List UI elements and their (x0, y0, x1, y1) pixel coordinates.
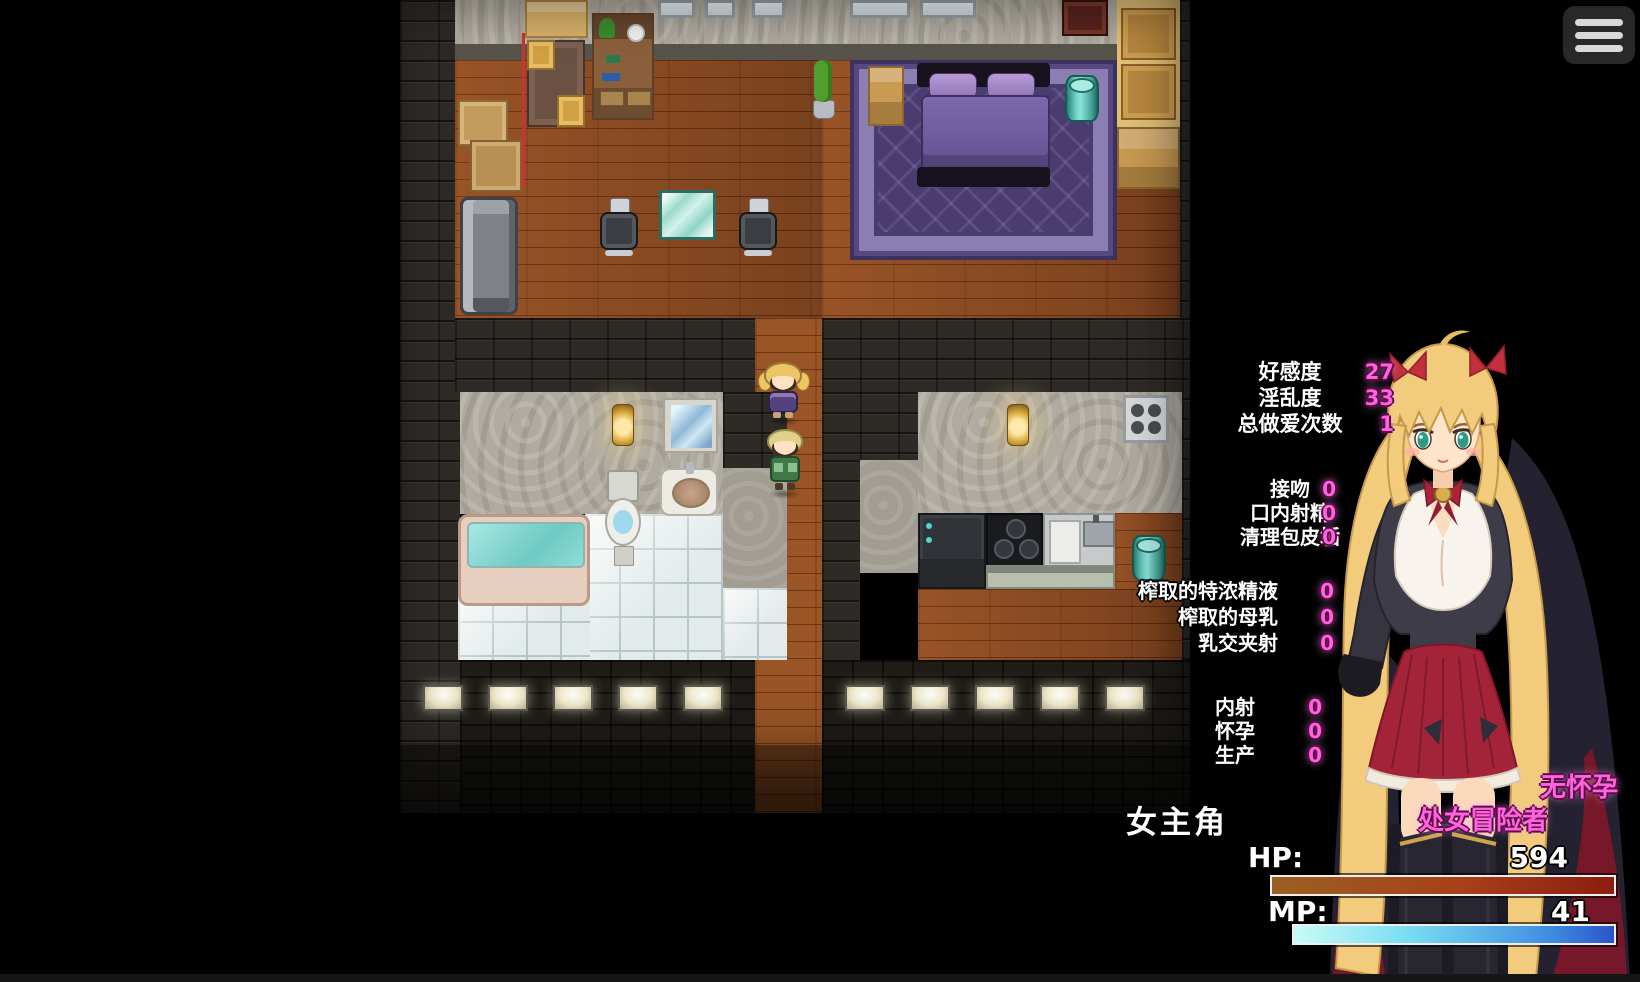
sink-faucet (686, 462, 694, 474)
basket (600, 91, 624, 106)
character-name: 女主角 (1126, 797, 1228, 842)
bed-blanket (921, 95, 1050, 175)
stat-value: 27 (1340, 359, 1394, 385)
bathtub (458, 514, 590, 606)
chair-base (744, 250, 772, 256)
stat-label: 榨取的母乳 (1040, 604, 1278, 630)
bottom-edge (0, 974, 1640, 982)
window (850, 0, 910, 18)
stat-group-extraction-values: 0 0 0 (1280, 578, 1334, 656)
cabinet-door (1121, 8, 1176, 60)
cactus (814, 60, 832, 102)
cardboard-boxes (458, 100, 522, 192)
mp-bar (1292, 924, 1616, 945)
sprite-shadow (766, 416, 800, 426)
lit-window (553, 685, 593, 711)
window (658, 0, 695, 18)
stat-value: 0 (1268, 719, 1322, 743)
bathroom-tile-floor (723, 588, 787, 660)
glass-table (659, 190, 716, 240)
hamburger-menu-icon (1575, 45, 1623, 52)
vent-fan (1123, 395, 1169, 443)
stat-value: 0 (1268, 695, 1322, 719)
lit-window (845, 685, 885, 711)
stat-group-extraction-labels: 榨取的特浓精液 榨取的母乳 乳交夹射 (1040, 578, 1278, 656)
mirror-glass (671, 405, 712, 448)
faucet (1093, 515, 1099, 523)
sprite-feet (773, 412, 781, 418)
gold-cabinet (527, 40, 555, 70)
hp-bar (1270, 875, 1616, 896)
chair-seat (739, 212, 777, 250)
right-brick-edge (1180, 0, 1190, 318)
stat-group-breeding-values: 0 0 0 (1268, 695, 1322, 767)
shelf-item (602, 73, 620, 81)
hamburger-menu-icon (1575, 32, 1623, 39)
stat-value: 0 (1280, 604, 1334, 630)
sink-basin (1083, 521, 1115, 547)
bathroom-mirror (663, 398, 718, 453)
bedroom-right-wall (1117, 0, 1180, 127)
lit-window (683, 685, 723, 711)
chair-seat (600, 212, 638, 250)
sprite-pocket (774, 463, 783, 472)
wall-lantern (1007, 404, 1029, 446)
cabinet-mark (926, 537, 932, 543)
shelf-plant (599, 18, 615, 38)
toilet-base (614, 546, 634, 566)
fan-blade (1131, 404, 1144, 417)
wall-clock (627, 24, 645, 42)
sprite-face (770, 376, 796, 391)
stat-group-relationship-values: 27 33 1 (1340, 359, 1394, 437)
lit-window (910, 685, 950, 711)
stat-value: 0 (1280, 578, 1334, 604)
basket (627, 91, 651, 106)
sprite-body (768, 391, 798, 413)
hp-value: 594 (1452, 841, 1568, 874)
status-tag-title: 处女冒险者 (1418, 800, 1548, 837)
kitchen-sink-unit (1043, 513, 1115, 567)
bathroom-sink (660, 468, 718, 516)
stat-label: 乳交夹射 (1040, 630, 1278, 656)
sprite-shadow (767, 489, 801, 499)
bed-footboard (917, 167, 1050, 187)
burner (1019, 539, 1039, 559)
fan-blade (1148, 421, 1161, 434)
bottom-shade (400, 745, 1190, 813)
lit-window (618, 685, 658, 711)
stat-value: 0 (1268, 743, 1322, 767)
shelf-book (606, 55, 620, 63)
stat-group-acts-values: 0 0 0 (1282, 477, 1336, 549)
trash-barrel (1065, 75, 1099, 122)
stove (986, 513, 1043, 567)
fan-blade (1131, 421, 1144, 434)
hp-label: HP: (1248, 841, 1303, 874)
lit-window (975, 685, 1015, 711)
kitchen-barrel (1132, 535, 1166, 581)
stat-value: 33 (1340, 385, 1394, 411)
stat-value: 0 (1282, 501, 1336, 525)
kitchen-side-wall (860, 460, 918, 573)
game-screen: 好感度 淫乱度 总做爱次数 27 33 1 接吻 口内射精 清理包皮垢 0 0 … (0, 0, 1640, 982)
npc-sprite[interactable] (763, 427, 807, 499)
game-map-viewport[interactable] (375, 0, 1190, 813)
sprite-pocket (788, 463, 797, 472)
sprite-feet (785, 412, 793, 418)
lit-window (488, 685, 528, 711)
stat-value: 0 (1280, 630, 1334, 656)
cactus-plant (810, 60, 836, 120)
stat-value: 0 (1282, 477, 1336, 501)
sofa (460, 197, 518, 315)
mid-wall-left (455, 318, 755, 392)
player-sprite[interactable] (760, 360, 806, 426)
cuckoo-clock (1062, 0, 1108, 36)
cabinet-door (1121, 64, 1176, 120)
bathtub-water (467, 522, 585, 568)
sink-bowl (672, 478, 710, 508)
double-bed (917, 63, 1050, 190)
bedroom-drawer-chest (1117, 127, 1180, 189)
chair-base (605, 250, 633, 256)
window (752, 0, 785, 18)
gold-cabinet (557, 95, 585, 127)
sprite-feet (787, 483, 795, 490)
plant-pot (813, 100, 835, 119)
lit-window (423, 685, 463, 711)
stat-value: 1 (1340, 411, 1394, 437)
kitchen-cabinet (918, 513, 986, 589)
hamburger-menu-icon (1575, 19, 1623, 26)
tan-counter (525, 0, 588, 38)
sprite-face (772, 441, 798, 456)
sprite-feet (775, 483, 783, 490)
stat-value: 0 (1282, 525, 1336, 549)
stat-label: 榨取的特浓精液 (1040, 578, 1278, 604)
office-chair (733, 198, 783, 258)
wall-lantern (612, 404, 634, 446)
status-tag-pregnancy: 无怀孕 (1540, 767, 1618, 804)
fan-blade (1148, 404, 1161, 417)
nightstand (868, 66, 904, 126)
toilet (605, 470, 641, 568)
menu-button[interactable] (1563, 6, 1635, 64)
bookshelf (592, 13, 654, 120)
kitchen-left-brick-low (822, 460, 860, 660)
kitchen-left-brick (822, 392, 918, 462)
cabinet-mark (926, 523, 932, 529)
mid-wall-right (822, 318, 1182, 392)
burner (994, 539, 1014, 559)
window (705, 0, 735, 18)
office-chair (597, 198, 641, 258)
dishwasher (1049, 520, 1081, 564)
toilet-water (613, 510, 633, 534)
red-cord (522, 33, 525, 188)
box (470, 140, 522, 192)
burner (1006, 519, 1026, 539)
lit-window (1040, 685, 1080, 711)
window (920, 0, 976, 18)
